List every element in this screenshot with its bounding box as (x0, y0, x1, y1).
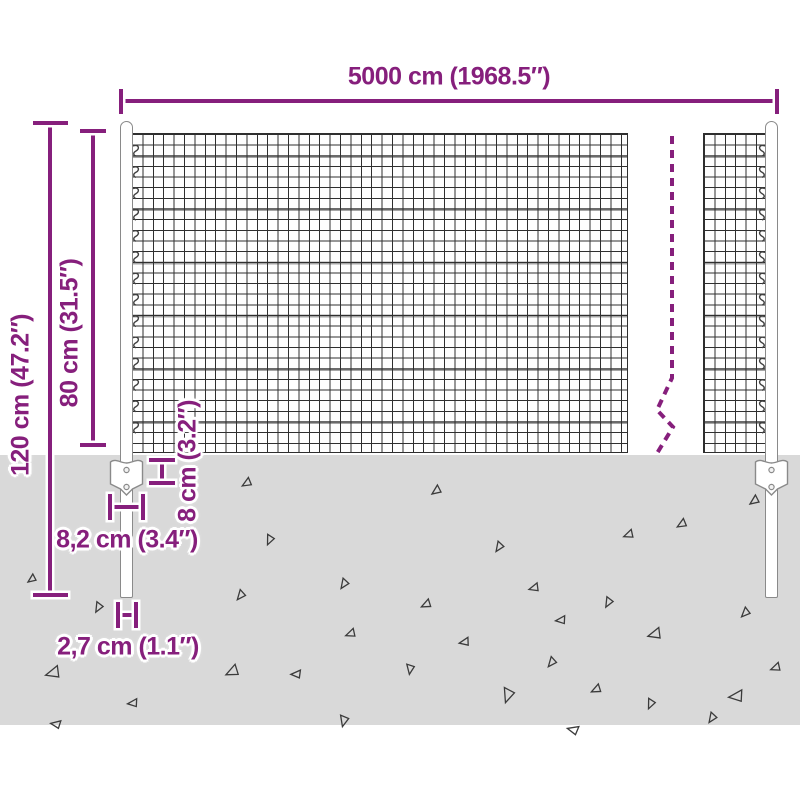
dim-post-height-cap-top (33, 121, 68, 125)
fence-post-right (765, 121, 778, 598)
dim-fence-height-label: 80 cm (31.5″) (58, 259, 83, 408)
dim-post-width-label: 2,7 cm (1.1″) (57, 635, 199, 660)
dim-plate-width-cap-right (141, 494, 145, 520)
mesh-panel-right (703, 133, 767, 453)
dim-post-height-line (48, 123, 52, 595)
mesh-panel-left (131, 133, 628, 453)
dim-total-width-label: 5000 cm (1968.5″) (348, 65, 550, 90)
dim-post-height-cap-bottom (33, 593, 68, 597)
dim-fence-height-line (91, 131, 95, 445)
dim-plate-height-label: 8 cm (3.2″) (176, 400, 201, 522)
dim-plate-width-line (110, 505, 143, 509)
dim-fence-height-cap-bottom (80, 443, 106, 447)
dim-post-width-cap-left (116, 602, 120, 628)
dim-post-width-cap-right (134, 602, 138, 628)
dim-plate-height-cap-top (149, 458, 175, 462)
dim-plate-width-cap-left (108, 494, 112, 520)
dim-plate-height-cap-bottom (149, 481, 175, 485)
dim-fence-height-cap-top (80, 129, 106, 133)
dim-plate-width-label: 8,2 cm (3.4″) (56, 528, 198, 553)
dim-total-width-cap-left (119, 89, 123, 114)
dim-post-height-label: 120 cm (47.2″) (9, 314, 34, 476)
diagram-canvas: 5000 cm (1968.5″) 120 cm (47.2″) 80 cm (… (0, 0, 800, 800)
dim-total-width-cap-right (775, 89, 779, 114)
dim-total-width-line (121, 99, 777, 103)
